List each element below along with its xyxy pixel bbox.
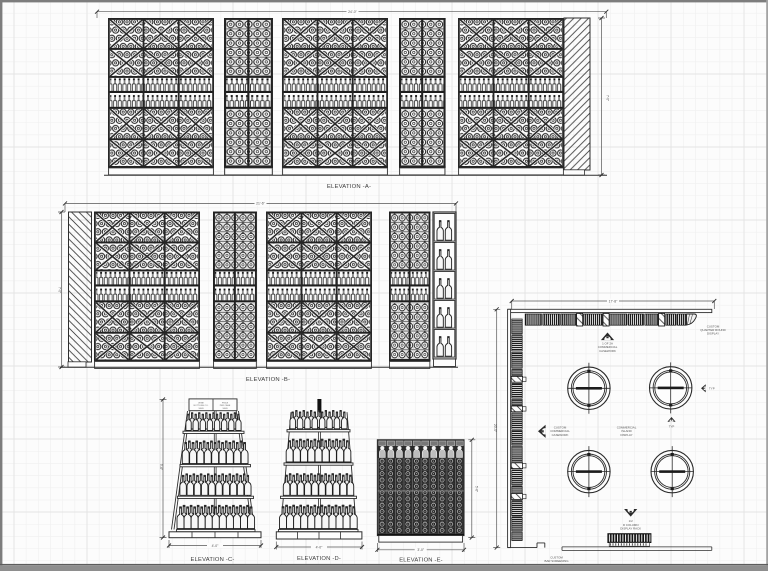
svg-text:CASEWORK: CASEWORK [552,433,569,437]
svg-text:CASEWORK: CASEWORK [599,349,616,353]
svg-text:BAR SCREENING: BAR SCREENING [545,559,570,563]
svg-text:SIGN: SIGN [198,408,204,410]
svg-text:24'-0": 24'-0" [348,10,357,14]
svg-text:DISPLAY: DISPLAY [707,332,719,336]
svg-text:21'-6": 21'-6" [256,202,265,206]
svg-text:DISPLAY: DISPLAY [621,433,633,437]
svg-text:5'-6": 5'-6" [159,464,163,470]
svg-text:7'-0": 7'-0" [58,287,62,293]
svg-text:SIGN: SIGN [222,408,228,410]
svg-text:ELEVATION -B-: ELEVATION -B- [246,377,290,383]
svg-text:PER CASE: PER CASE [220,404,231,407]
svg-text:3'-0": 3'-0" [417,548,425,552]
svg-text:ELEVATION -E-: ELEVATION -E- [399,557,443,563]
svg-text:DISPLAY RACK: DISPLAY RACK [620,526,641,530]
svg-text:4'-0": 4'-0" [212,544,220,548]
svg-text:7'-0": 7'-0" [606,95,610,101]
svg-text:TYP: TYP [669,424,675,428]
svg-text:ELEVATION -A-: ELEVATION -A- [327,184,371,190]
svg-text:4'-0": 4'-0" [316,546,324,550]
svg-text:20'-0": 20'-0" [493,424,497,432]
svg-text:17'-8": 17'-8" [609,299,618,303]
svg-text:ELEVATION -C-: ELEVATION -C- [191,557,235,563]
svg-text:5'-6": 5'-6" [475,486,479,492]
svg-text:ELEVATION -D-: ELEVATION -D- [297,556,341,562]
svg-text:TYP: TYP [709,387,715,391]
